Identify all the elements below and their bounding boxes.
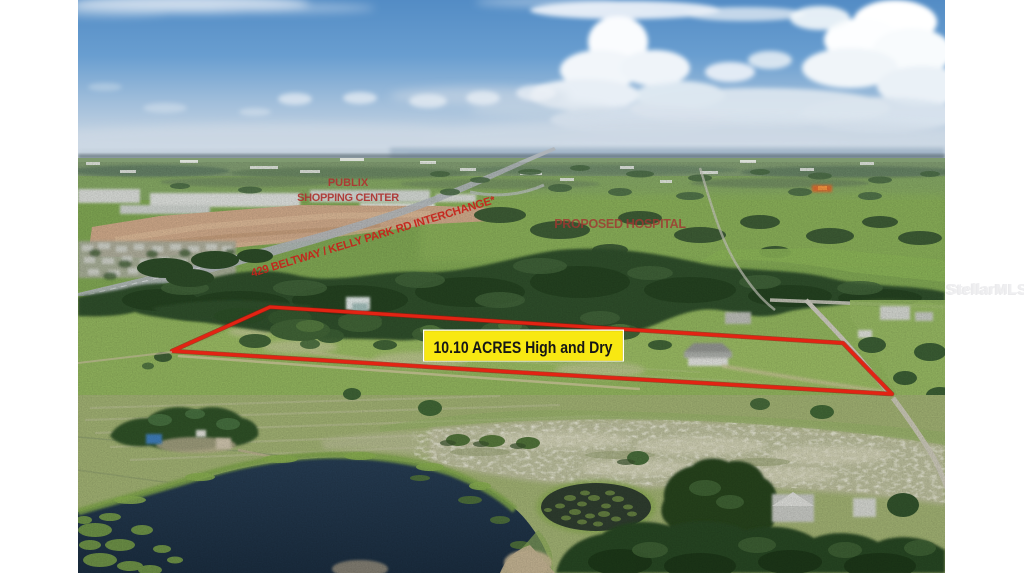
svg-text:PROPOSED HOSPITAL: PROPOSED HOSPITAL xyxy=(554,217,686,231)
svg-text:SHOPPING CENTER: SHOPPING CENTER xyxy=(297,192,399,204)
svg-text:PUBLIX: PUBLIX xyxy=(328,177,369,189)
svg-text:StellarMLS: StellarMLS xyxy=(948,281,1024,298)
svg-text:10.10 ACRES High and Dry: 10.10 ACRES High and Dry xyxy=(434,339,614,357)
